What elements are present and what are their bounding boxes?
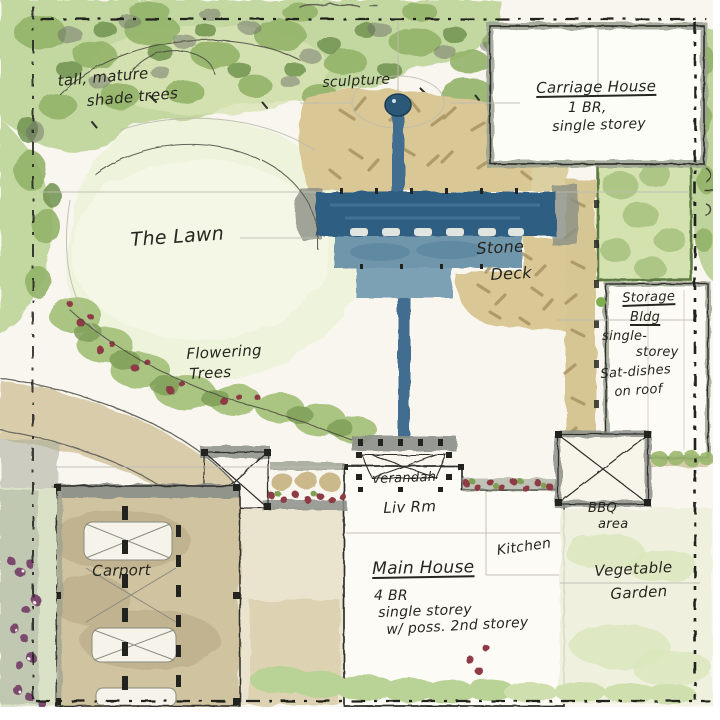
label-stone-deck-line1: Stone: [476, 238, 525, 258]
label-vegetable-line2: Garden: [610, 583, 668, 602]
label-bbq-line2: area: [598, 518, 628, 532]
label-verandah: verandah: [372, 471, 437, 488]
label-bbq-line1: BBQ: [588, 502, 617, 516]
label-carport: Carport: [92, 562, 151, 580]
label-flowering-line2: Trees: [189, 364, 232, 383]
label-kitchen: Kitchen: [496, 536, 552, 559]
site-plan-page: tall, mature shade trees sculpture Carri…: [0, 0, 720, 720]
label-storage-line6: on roof: [614, 383, 663, 401]
label-sculpture: sculpture: [322, 72, 391, 91]
plan-labels: tall, mature shade trees sculpture Carri…: [0, 0, 720, 720]
label-flowering-line1: Flowering: [186, 342, 262, 362]
label-main-house-br: 4 BR: [374, 589, 408, 604]
label-shade-trees-line2: shade trees: [86, 85, 179, 109]
label-storage-line5: Sat-dishes: [600, 363, 671, 382]
label-stone-deck-line2: Deck: [490, 264, 532, 284]
label-main-house: Main House: [372, 558, 475, 578]
label-the-lawn: The Lawn: [130, 223, 225, 250]
label-carriage-house-storey: single storey: [552, 117, 646, 136]
label-living-room: Liv Rm: [383, 498, 437, 516]
label-vegetable-line1: Vegetable: [594, 559, 673, 580]
label-storage-line4: storey: [636, 346, 679, 360]
label-storage-line3: single-: [602, 330, 647, 344]
label-carriage-house: Carriage House: [536, 78, 656, 97]
label-carriage-house-br: 1 BR,: [568, 101, 607, 116]
label-storage-line2: Bldg: [630, 311, 660, 325]
label-storage-line1: Storage: [622, 290, 675, 306]
label-shade-trees-line1: tall, mature: [57, 65, 149, 89]
